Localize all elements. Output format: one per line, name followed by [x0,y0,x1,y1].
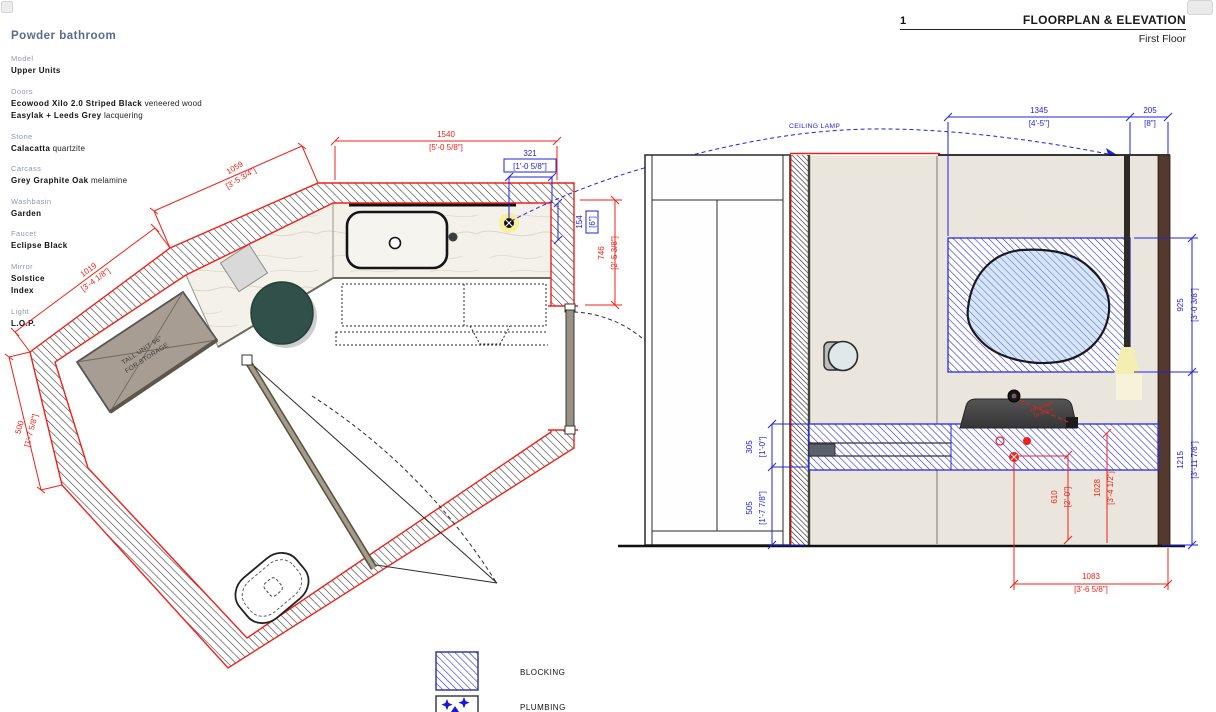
svg-text:[3'-4 1/2"]: [3'-4 1/2"] [1106,471,1115,505]
svg-text:[8"]: [8"] [1144,119,1156,128]
legend-blocking: BLOCKING [436,652,565,690]
svg-text:[2'-5 3/8"]: [2'-5 3/8"] [610,236,619,270]
vanity-blocking [809,424,1158,470]
svg-text:[2'-0"]: [2'-0"] [1063,487,1072,507]
svg-text:[1'-7 7/8"]: [1'-7 7/8"] [758,491,767,525]
door-hinge [565,426,575,434]
pivot-door [242,355,497,583]
svg-text:1215: 1215 [1176,451,1185,469]
wall-end-jamb [1158,155,1170,545]
svg-text:[5'-0 5/8"]: [5'-0 5/8"] [429,143,463,152]
svg-text:[6"]: [6"] [588,216,597,228]
tall-unit-elevation [645,155,790,545]
ceiling-lamp-label: CEILING LAMP [789,123,840,130]
legend-plumbing-label: PLUMBING [520,703,566,712]
drawing-canvas: TALL UNIT 96" FOR STORAGE [0,0,1216,712]
svg-text:1028: 1028 [1093,479,1102,497]
svg-text:[1'-0"]: [1'-0"] [758,437,767,457]
mirror-blocking [948,238,1130,372]
entry-door-right [548,304,657,434]
plumbing-point [1023,437,1031,445]
svg-text:[3'-6 5/8"]: [3'-6 5/8"] [1074,585,1108,594]
svg-text:500: 500 [14,419,26,435]
svg-text:610: 610 [1050,490,1059,504]
svg-text:[1'-7 5/8"]: [1'-7 5/8"] [22,413,39,448]
svg-text:305: 305 [745,440,754,454]
mirror [968,250,1110,363]
svg-text:205: 205 [1143,106,1157,115]
svg-text:[3'-0 3/8"]: [3'-0 3/8"] [1190,288,1199,322]
svg-text:505: 505 [745,501,754,515]
svg-text:[3'-11 7/8"]: [3'-11 7/8"] [1190,441,1199,479]
legend-blocking-label: BLOCKING [520,668,565,677]
legend: BLOCKING PLUMBING [436,652,566,712]
door-leaf [566,310,574,426]
faucet-hole [390,238,401,249]
pivot-hinge [242,355,252,365]
elevation: connection by others 1345 [618,106,1199,594]
legend-plumbing: PLUMBING [436,696,566,712]
cabinet-dashed-outline [336,284,550,345]
svg-text:1345: 1345 [1030,106,1048,115]
dim-205: 205 [8"] [1130,106,1172,154]
svg-text:154: 154 [575,215,584,229]
wall-section-hatch [791,155,809,545]
plumbing-point [1009,452,1019,462]
soap-hole [449,233,458,242]
svg-text:925: 925 [1176,298,1185,312]
wall-sconce [824,342,858,371]
svg-text:[1'-0 5/8"]: [1'-0 5/8"] [513,162,547,171]
svg-text:[4'-5"]: [4'-5"] [1029,119,1049,128]
svg-text:1540: 1540 [437,130,455,139]
svg-text:746: 746 [597,246,606,260]
drawing-sheet: Powder bathroom Model Upper Units Doors … [0,0,1216,712]
drawer-front [809,444,835,456]
svg-text:321: 321 [523,149,537,158]
svg-text:1083: 1083 [1082,572,1100,581]
